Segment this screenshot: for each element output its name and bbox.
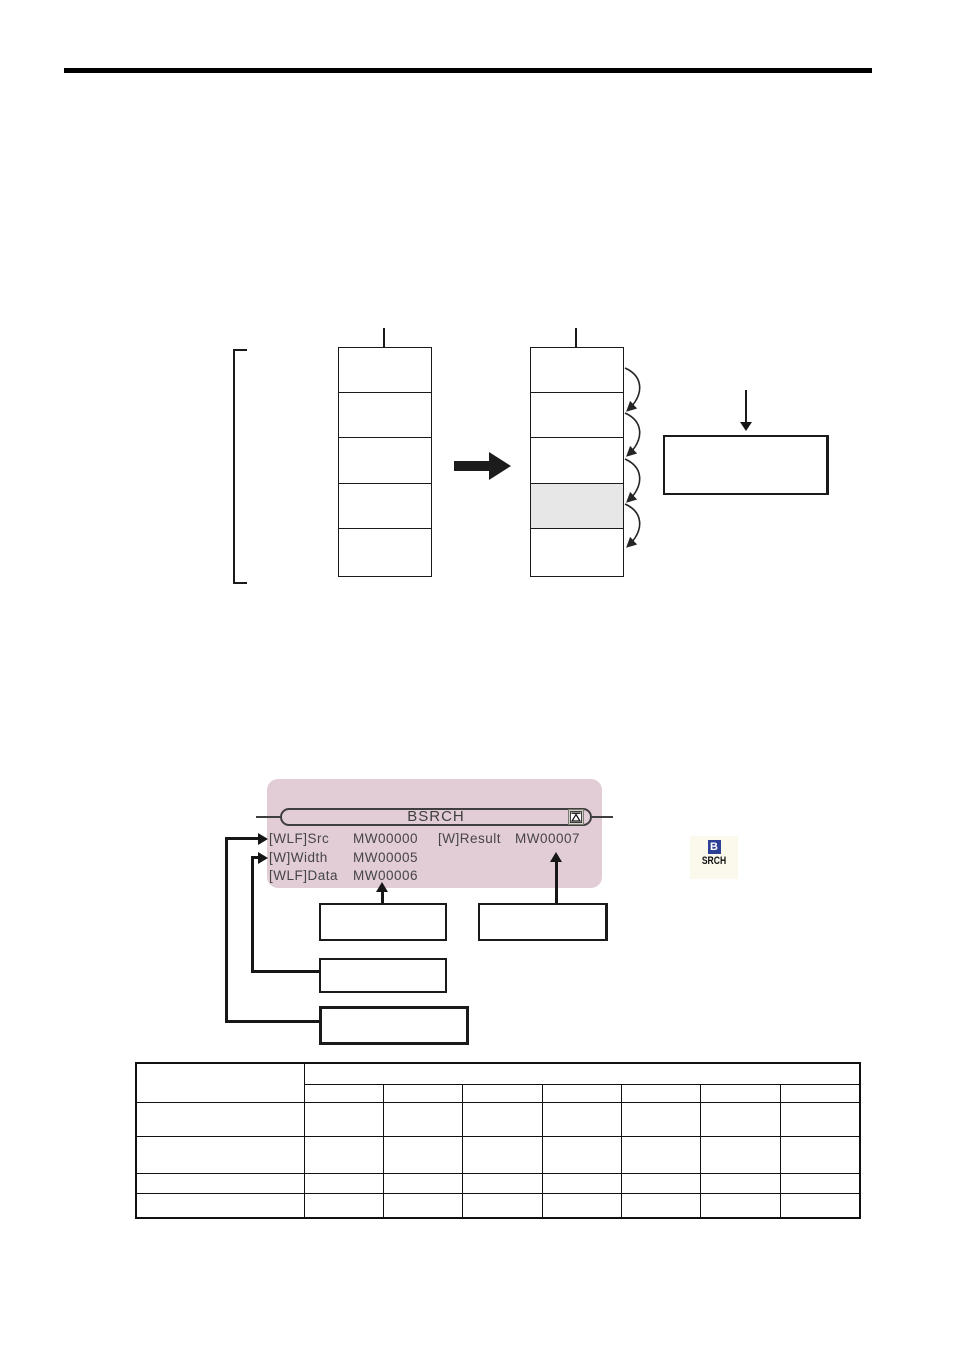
- source-data-stack: [338, 347, 432, 577]
- table-cell: [136, 1102, 304, 1136]
- table-cell: [304, 1193, 383, 1218]
- result-callout-arrowhead-icon: [550, 852, 562, 862]
- bsrch-title: BSRCH: [280, 808, 592, 826]
- table-cell: [700, 1102, 780, 1136]
- width-connector-vertical: [251, 856, 254, 973]
- table-cell: [780, 1136, 860, 1173]
- table-cell: [542, 1136, 621, 1173]
- stack-cell: [339, 484, 431, 529]
- rung-line-right: [590, 816, 613, 818]
- stack-cell: [339, 529, 431, 576]
- table-header-cell: [780, 1084, 860, 1102]
- range-bracket: [233, 349, 247, 584]
- table-row: [136, 1102, 860, 1136]
- param-data-value: MW00006: [353, 868, 418, 883]
- table-header-row-merged: [136, 1063, 860, 1084]
- note-box: [663, 435, 829, 495]
- search-sequence-arcs-icon: [621, 360, 655, 570]
- param-result-value: MW00007: [515, 831, 580, 846]
- table-cell: [462, 1193, 542, 1218]
- src-pointer-arrowhead-icon: [258, 833, 268, 845]
- table-cell: [462, 1136, 542, 1173]
- table-cell: [136, 1136, 304, 1173]
- table-cell: [621, 1193, 700, 1218]
- src-callout-box: [319, 1006, 469, 1045]
- table-cell: [621, 1102, 700, 1136]
- table-cell: [304, 1173, 383, 1193]
- spec-table: [135, 1062, 861, 1219]
- table-header-cell: [542, 1084, 621, 1102]
- table-cell: [780, 1102, 860, 1136]
- src-connector-vertical: [225, 837, 228, 1023]
- table-header-cell: [700, 1084, 780, 1102]
- stack-cell-found-shaded: [531, 484, 623, 529]
- collapse-triangle-icon: [568, 809, 584, 825]
- page-top-rule: [64, 68, 872, 73]
- table-row: [136, 1193, 860, 1218]
- stack-cell: [339, 438, 431, 484]
- table-cell: [700, 1193, 780, 1218]
- rung-line-left: [256, 816, 282, 818]
- param-src-label: [WLF]Src: [269, 831, 329, 846]
- param-src-value: MW00000: [353, 831, 418, 846]
- param-result-label: [W]Result: [438, 831, 501, 846]
- searched-data-stack: [530, 347, 624, 577]
- table-header-cell: [383, 1084, 462, 1102]
- table-cell: [542, 1193, 621, 1218]
- down-arrow-head-icon: [740, 422, 752, 431]
- table-cell: [700, 1136, 780, 1173]
- result-callout-line: [555, 860, 558, 903]
- table-row: [136, 1173, 860, 1193]
- data-callout-arrowhead-icon: [376, 882, 388, 892]
- table-header-cell: [462, 1084, 542, 1102]
- table-cell: [462, 1173, 542, 1193]
- table-cell: [383, 1102, 462, 1136]
- table-cell: [621, 1173, 700, 1193]
- param-data-label: [WLF]Data: [269, 868, 338, 883]
- stack-cell: [531, 393, 623, 438]
- bsrch-palette-icon: B SRCH: [690, 836, 738, 879]
- stack-cell: [339, 348, 431, 393]
- width-connector-horizontal: [251, 970, 319, 973]
- transfer-arrow-icon: [453, 449, 513, 483]
- src-connector-horizontal: [225, 1020, 319, 1023]
- table-header-cell: [621, 1084, 700, 1102]
- table-cell: [621, 1136, 700, 1173]
- param-width-label: [W]Width: [269, 850, 328, 865]
- manual-page: BSRCH [WLF]Src MW00000 [W]Result MW00007…: [0, 0, 954, 1350]
- icon-letter-b: B: [708, 840, 721, 854]
- table-cell: [542, 1102, 621, 1136]
- spec-table-wrapper: [135, 1062, 861, 1219]
- table-cell: [542, 1173, 621, 1193]
- table-cell: [136, 1193, 304, 1218]
- table-header-cell: [304, 1084, 383, 1102]
- stack-cell: [339, 393, 431, 438]
- table-cell: [780, 1193, 860, 1218]
- stack-cell: [531, 529, 623, 576]
- table-cell: [383, 1136, 462, 1173]
- width-callout-box: [319, 958, 447, 993]
- stack-cell: [531, 438, 623, 484]
- table-cell: [383, 1173, 462, 1193]
- table-header-stub-cell: [136, 1063, 304, 1102]
- table-cell: [462, 1102, 542, 1136]
- src-pointer-line: [227, 837, 259, 840]
- table-cell: [700, 1173, 780, 1193]
- icon-text-srch: SRCH: [695, 855, 732, 867]
- table-cell: [304, 1136, 383, 1173]
- table-cell: [136, 1173, 304, 1193]
- param-width-value: MW00005: [353, 850, 418, 865]
- table-cell: [304, 1102, 383, 1136]
- stack-cell: [531, 348, 623, 393]
- result-callout-box: [478, 903, 608, 941]
- down-arrow-line: [745, 390, 747, 423]
- table-cell: [780, 1173, 860, 1193]
- table-row: [136, 1136, 860, 1173]
- data-callout-box: [319, 903, 447, 941]
- width-pointer-arrowhead-icon: [258, 852, 268, 864]
- table-cell: [383, 1193, 462, 1218]
- table-header-merged-cell: [304, 1063, 860, 1084]
